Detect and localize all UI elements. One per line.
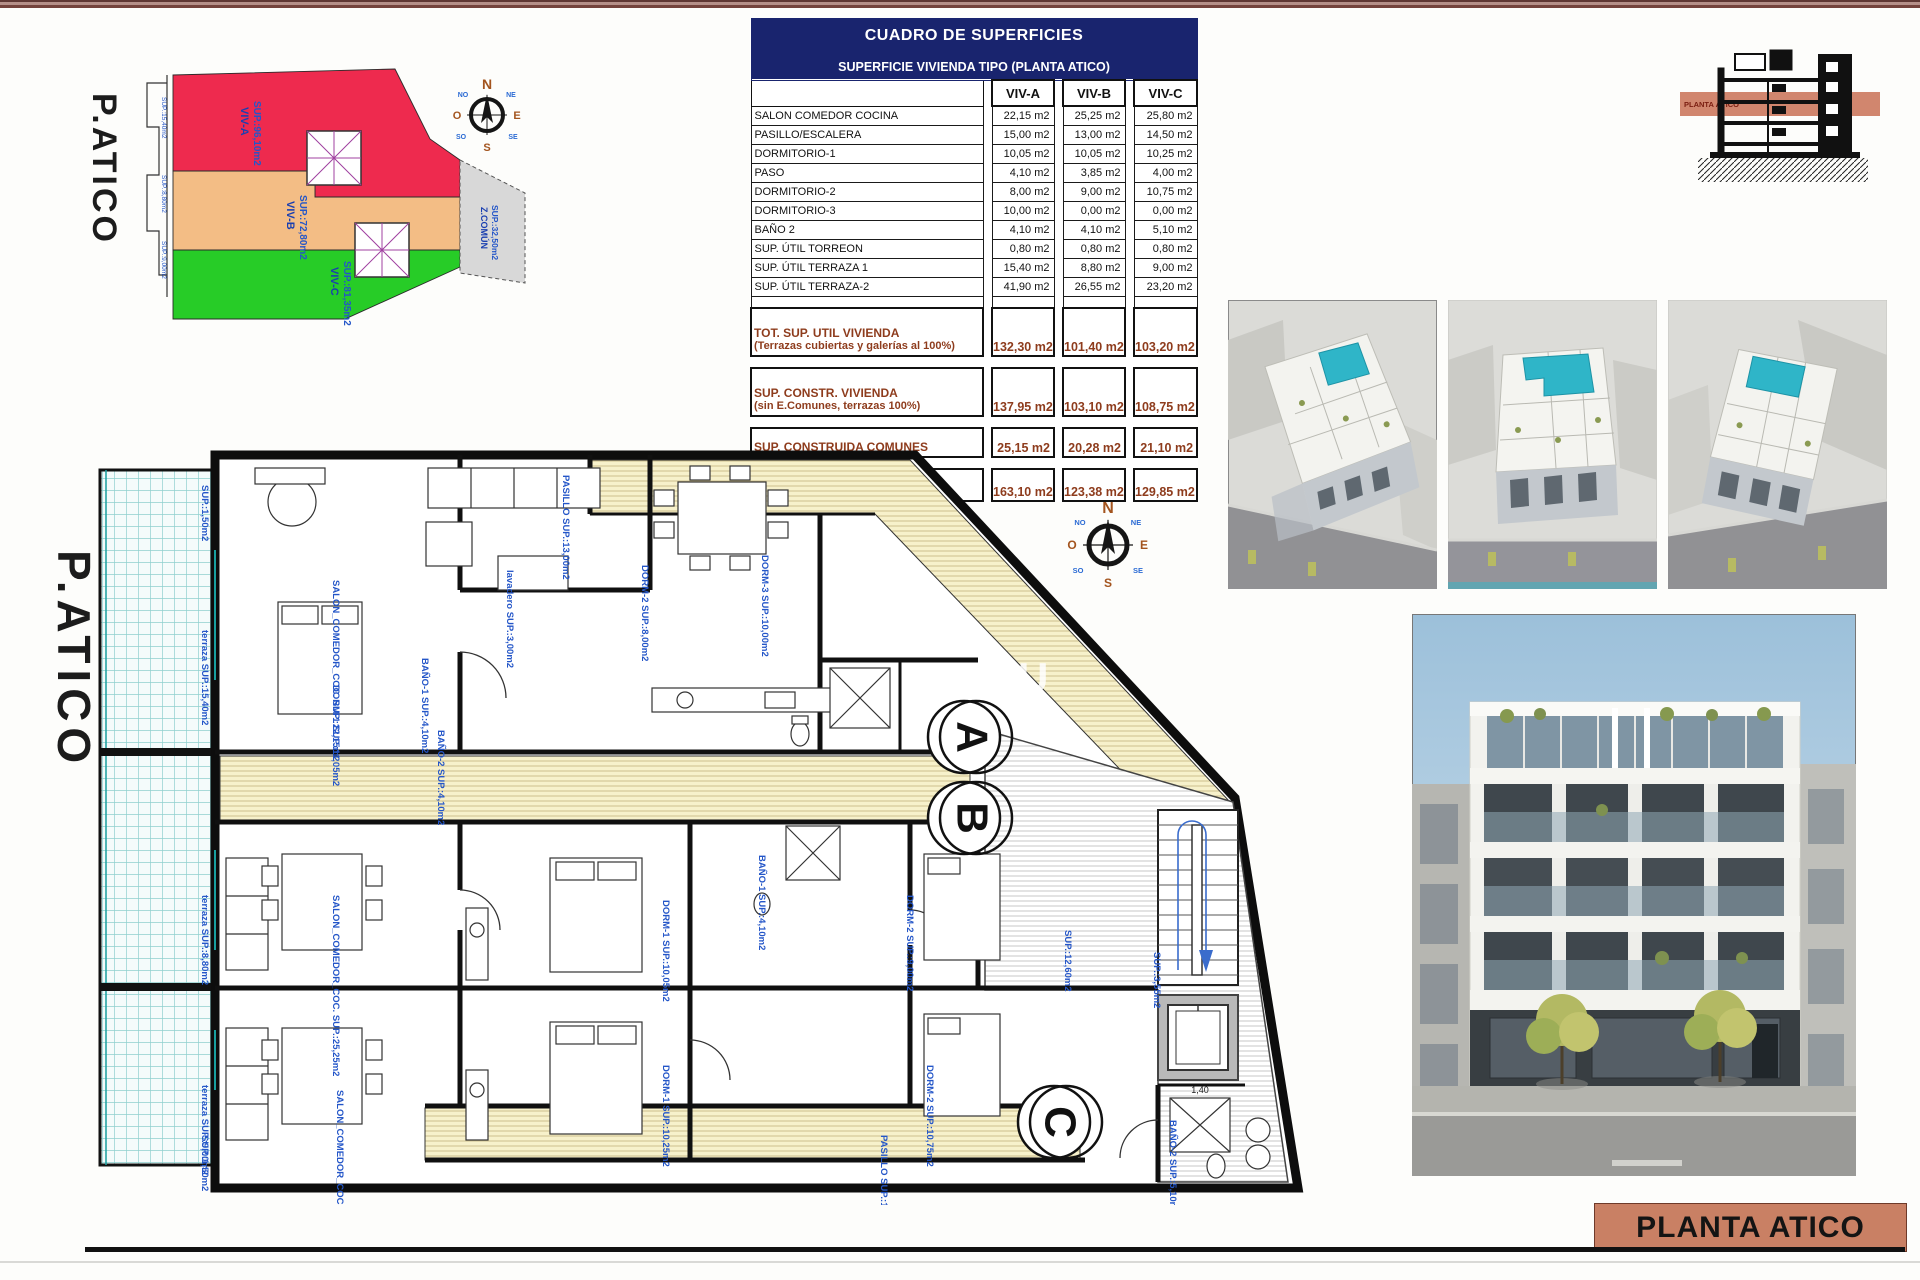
room-label: terraza SUP.:8,80m2 <box>199 895 210 985</box>
north-compass-icon: N S E O NO NE SO SE <box>453 76 521 154</box>
floor-plan-title: P.ATICO <box>48 550 100 769</box>
table-row: PASILLO/ESCALERA 15,00 m2 13,00 m2 14,50… <box>751 126 1197 145</box>
room-label: DORM-1 SUP.:10,05m2 <box>660 900 671 1002</box>
value-a: 15,40 m2 <box>992 259 1054 278</box>
value-c: 0,80 m2 <box>1134 240 1197 259</box>
table-row: DORMITORIO-1 10,05 m2 10,05 m2 10,25 m2 <box>751 145 1197 164</box>
neighbor-building <box>1412 784 1472 1116</box>
row-label: DORMITORIO-2 <box>751 183 983 202</box>
compass-s: S <box>483 142 490 154</box>
zone-label: VIV-C <box>328 267 340 296</box>
value-b: 0,00 m2 <box>1063 202 1125 221</box>
table-row: DORMITORIO-3 10,00 m2 0,00 m2 0,00 m2 <box>751 202 1197 221</box>
room-label: SUP.:12,60m2 <box>1062 930 1073 992</box>
value-b: 3,85 m2 <box>1063 164 1125 183</box>
strip-label: SUP.:15,40m2 <box>160 97 167 139</box>
drawing-sheet: P.ATICO SUP.:15,40m2 SUP.:8,80m2 SUP.:9,… <box>0 0 1920 1280</box>
value-b: 10,05 m2 <box>1063 145 1125 164</box>
total-c: 108,75 m2 <box>1134 368 1197 416</box>
room-label: BAÑO-1 SUP.:4,10m2 <box>756 855 767 950</box>
compass-n: N <box>482 76 492 92</box>
section-mark-c: C <box>1036 1106 1085 1138</box>
compass-se: SE <box>508 134 518 141</box>
zone-label: VIV-B <box>284 201 296 230</box>
value-b: 0,80 m2 <box>1063 240 1125 259</box>
table-row: PASO 4,10 m2 3,85 m2 4,00 m2 <box>751 164 1197 183</box>
compass-ne: NE <box>1131 518 1141 527</box>
spacer-row <box>751 297 1197 309</box>
total-note: (sin E.Comunes, terrazas 100%) <box>754 400 980 413</box>
row-label: BAÑO 2 <box>751 221 983 240</box>
total-note: (Terrazas cubiertas y galerías al 100%) <box>754 340 980 353</box>
site-plan-title: P.ATICO <box>85 93 123 245</box>
compass-e: E <box>1140 538 1148 552</box>
zone-sup: SUP.:81,35m2 <box>341 261 352 326</box>
top-border-rule <box>0 0 1920 8</box>
value-c: 0,00 m2 <box>1134 202 1197 221</box>
value-a: 41,90 m2 <box>992 278 1054 297</box>
compass-no: NO <box>458 92 469 99</box>
zone-sup: SUP.:32,50m2 <box>490 205 500 260</box>
zone-sup: SUP.:96,10m2 <box>251 101 262 166</box>
column-header-empty <box>751 80 983 106</box>
row-label: SUP. ÚTIL TORREON <box>751 240 983 259</box>
spacer-row <box>751 356 1197 368</box>
title-block: PLANTA ATICO <box>1594 1203 1907 1252</box>
room-label: DORM-2 SUP.:10,75m2 <box>924 1065 935 1167</box>
room-label: terraza SUP.:15,40m2 <box>199 630 210 725</box>
elevator <box>1158 995 1238 1080</box>
total-label-text: SUP. CONSTR. VIVIENDA <box>754 386 898 400</box>
compass-ne: NE <box>506 92 516 99</box>
compass-s: S <box>1104 576 1112 590</box>
street-tree <box>1818 546 1826 560</box>
building-model <box>1496 348 1618 524</box>
building-section <box>1710 50 1860 158</box>
total-a: 137,95 m2 <box>992 368 1054 416</box>
value-a: 4,10 m2 <box>992 164 1054 183</box>
total-b: 101,40 m2 <box>1063 308 1125 356</box>
zone-label: Z.COMÚN <box>479 207 490 249</box>
row-label: SALON COMEDOR COCINA <box>751 106 983 126</box>
total-label: SUP. CONSTR. VIVIENDA (sin E.Comunes, te… <box>751 368 983 416</box>
compass-o: O <box>1067 538 1076 552</box>
total-b: 103,10 m2 <box>1063 368 1125 416</box>
value-a: 10,05 m2 <box>992 145 1054 164</box>
row-label: DORMITORIO-1 <box>751 145 983 164</box>
table-row: SUP. ÚTIL TERRAZA 1 15,40 m2 8,80 m2 9,0… <box>751 259 1197 278</box>
strip-label: SUP.:9,00m2 <box>160 241 167 279</box>
compass-o: O <box>453 110 462 122</box>
total-row: SUP. CONSTR. VIVIENDA (sin E.Comunes, te… <box>751 368 1197 416</box>
row-label: PASILLO/ESCALERA <box>751 126 983 145</box>
value-a: 22,15 m2 <box>992 106 1054 126</box>
value-a: 4,10 m2 <box>992 221 1054 240</box>
ground-hatch <box>1698 158 1868 182</box>
value-b: 25,25 m2 <box>1063 106 1125 126</box>
compass-no: NO <box>1074 518 1085 527</box>
value-b: 9,00 m2 <box>1063 183 1125 202</box>
table-title-row: CUADRO DE SUPERFICIES <box>751 19 1197 54</box>
sheet-title: PLANTA ATICO <box>1636 1211 1865 1245</box>
value-c: 10,75 m2 <box>1134 183 1197 202</box>
value-b: 4,10 m2 <box>1063 221 1125 240</box>
table-row: DORMITORIO-2 8,00 m2 9,00 m2 10,75 m2 <box>751 183 1197 202</box>
floor-plan: P.ATICO SU <box>30 430 1350 1205</box>
spacer-row <box>751 416 1197 428</box>
facade-render <box>1412 614 1856 1176</box>
room-label: BAÑO-1 SUP.:4,10m2 <box>419 658 430 753</box>
value-c: 25,80 m2 <box>1134 106 1197 126</box>
stair-core-icon <box>355 223 409 277</box>
table-row: BAÑO 2 4,10 m2 4,10 m2 5,10 m2 <box>751 221 1197 240</box>
room-label: DORM-1 SUP.:10,25m2 <box>660 1065 671 1167</box>
room-label: PASILLO SUP.:11,75m2 <box>878 1135 889 1205</box>
value-c: 10,25 m2 <box>1134 145 1197 164</box>
value-c: 23,20 m2 <box>1134 278 1197 297</box>
column-header-viv-a: VIV-A <box>992 80 1054 106</box>
total-c: 103,20 m2 <box>1134 308 1197 356</box>
room-label: DORM-2 SUP.:8,00m2 <box>639 565 650 661</box>
room-label: BAÑO-2 SUP.:4,10m2 <box>435 730 446 825</box>
dimension-label: 1,40 <box>1191 1085 1209 1095</box>
compass-n: N <box>1102 500 1114 517</box>
row-label: DORMITORIO-3 <box>751 202 983 221</box>
room-label: PASILLO SUP.:13,00m2 <box>560 475 571 580</box>
value-c: 9,00 m2 <box>1134 259 1197 278</box>
column-header-viv-c: VIV-C <box>1134 80 1197 106</box>
table-row: SUP. ÚTIL TORREON 0,80 m2 0,80 m2 0,80 m… <box>751 240 1197 259</box>
room-label: DORM-1 SUP.:11,05m2 <box>330 685 341 786</box>
neighbor-building <box>1798 764 1856 1116</box>
value-c: 14,50 m2 <box>1134 126 1197 145</box>
terrace-strip <box>100 470 215 1165</box>
watermark: SU <box>990 654 1048 701</box>
row-label: PASO <box>751 164 983 183</box>
site-key-plan: P.ATICO SUP.:15,40m2 SUP.:8,80m2 SUP.:9,… <box>55 35 575 327</box>
room-label: SUP.:1,50m2 <box>199 485 210 541</box>
room-label: SUP.:1,50m2 <box>199 1135 210 1191</box>
strip-label: SUP.:8,80m2 <box>160 175 167 213</box>
value-a: 10,00 m2 <box>992 202 1054 221</box>
sidewalk <box>1412 1086 1856 1112</box>
zone-viv-c <box>173 250 460 319</box>
room-label: SUP.:3,55m2 <box>1151 952 1162 1008</box>
room-label: BAÑO-2 SUP.:5,10m2 <box>1167 1120 1178 1205</box>
compass-so: SO <box>1073 566 1084 575</box>
section-mark-b: B <box>948 802 997 834</box>
street-tree <box>1568 552 1576 566</box>
value-c: 5,10 m2 <box>1134 221 1197 240</box>
compass-e: E <box>513 110 520 122</box>
compass-so: SO <box>456 134 467 141</box>
value-a: 0,80 m2 <box>992 240 1054 259</box>
street-tree <box>1488 552 1496 566</box>
street-tree <box>1728 558 1736 572</box>
table-title: CUADRO DE SUPERFICIES <box>751 19 1197 54</box>
value-c: 4,00 m2 <box>1134 164 1197 183</box>
room-label: lavadero SUP.:3,00m2 <box>504 570 515 668</box>
room-label: DORM-2 SUP.:9,00m2 <box>904 895 915 991</box>
stair-core-icon <box>307 131 361 185</box>
column-header-viv-b: VIV-B <box>1063 80 1125 106</box>
compass-se: SE <box>1133 566 1143 575</box>
total-label: TOT. SUP. UTIL VIVIENDA (Terrazas cubier… <box>751 308 983 356</box>
road <box>1412 1116 1856 1176</box>
table-row: SUP. ÚTIL TERRAZA-2 41,90 m2 26,55 m2 23… <box>751 278 1197 297</box>
mini-elevation: PLANTA ÁTICO <box>1680 42 1880 187</box>
table-subtitle-row: SUPERFICIE VIVIENDA TIPO (PLANTA ATICO) <box>751 54 1197 81</box>
street <box>1448 540 1657 589</box>
bottom-border-rule <box>85 1247 1905 1252</box>
zone-label: VIV-A <box>238 107 250 136</box>
stairs <box>1158 810 1238 985</box>
neighbor-building <box>1448 345 1496 465</box>
total-row: TOT. SUP. UTIL VIVIENDA (Terrazas cubier… <box>751 308 1197 356</box>
section-mark-a: A <box>948 721 997 753</box>
total-a: 132,30 m2 <box>992 308 1054 356</box>
render-aerial-3 <box>1668 300 1887 589</box>
total-label-text: TOT. SUP. UTIL VIVIENDA <box>754 326 899 340</box>
column-header-row: VIV-A VIV-B VIV-C <box>751 80 1197 106</box>
table-subtitle: SUPERFICIE VIVIENDA TIPO (PLANTA ATICO) <box>751 54 1197 81</box>
room-label: SALON_COMEDOR_COC. SUP.:25,25m2 <box>330 895 341 1076</box>
room-label: DORM-3 SUP.:10,00m2 <box>759 555 770 657</box>
render-aerial-2 <box>1448 300 1657 589</box>
value-b: 8,80 m2 <box>1063 259 1125 278</box>
value-a: 8,00 m2 <box>992 183 1054 202</box>
table-row: SALON COMEDOR COCINA 22,15 m2 25,25 m2 2… <box>751 106 1197 126</box>
row-label: SUP. ÚTIL TERRAZA-2 <box>751 278 983 297</box>
room-label: SALON_COMEDOR_COC. SUP.:25,80m2 <box>334 1090 345 1205</box>
row-label: SUP. ÚTIL TERRAZA 1 <box>751 259 983 278</box>
bottom-border-rule-light <box>0 1261 1920 1263</box>
value-b: 26,55 m2 <box>1063 278 1125 297</box>
value-a: 15,00 m2 <box>992 126 1054 145</box>
value-b: 13,00 m2 <box>1063 126 1125 145</box>
north-compass-icon: N S E O NO NE SO SE <box>1067 500 1148 590</box>
zone-sup: SUP.:72,80m2 <box>297 195 308 260</box>
